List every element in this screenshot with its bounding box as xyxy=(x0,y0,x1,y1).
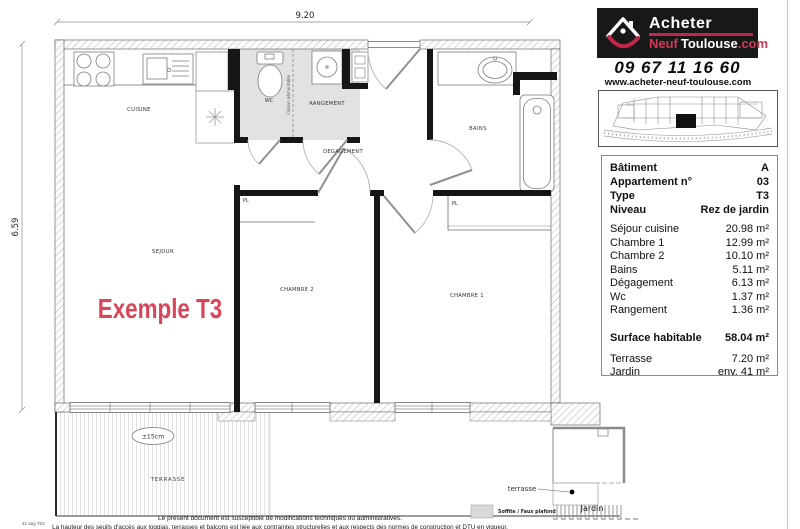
room-label-chambre1: CHAMBRE 1 xyxy=(450,293,484,299)
area-row-sejour-cuisine: Séjour cuisine20.98 m² xyxy=(610,223,769,237)
area-row-chambre1: Chambre 112.99 m² xyxy=(610,237,769,251)
room-label-rangement: RANGEMENT xyxy=(309,101,345,107)
svg-text:±15cm: ±15cm xyxy=(142,434,165,441)
disclaimer-line2: La hauteur des seuils d'accès aux loggia… xyxy=(30,524,530,529)
logo-line2: NeufToulouse.com xyxy=(649,37,755,51)
area-row-surface-habitable: Surface habitable58.04 m² xyxy=(610,331,769,345)
dimension-width-label: 9.20 xyxy=(296,11,315,21)
info-panel: BâtimentA Appartement n°03 TypeT3 Niveau… xyxy=(601,155,778,376)
bay-window-sejour xyxy=(70,403,230,413)
threshold-note: ±15cm xyxy=(132,428,174,445)
area-row-terrasse: Terrasse7.20 m² xyxy=(610,353,769,367)
room-label-sejour: SEJOUR xyxy=(152,249,174,255)
area-row-bains: Bains5.11 m² xyxy=(610,264,769,278)
inset-jardin-label: Jardin xyxy=(580,504,604,513)
logo-com: .com xyxy=(738,36,768,51)
site-plan-thumbnail xyxy=(598,90,778,147)
plan-title: Exemple T3 xyxy=(98,294,222,325)
room-label-bains: BAINS xyxy=(469,126,487,132)
terrace-label: TERRASSE xyxy=(150,477,186,483)
kitchen-fixtures xyxy=(74,52,235,143)
info-row-appartement: Appartement n°03 xyxy=(610,175,769,189)
area-row-jardin: Jardinenv. 41 m² xyxy=(610,366,769,380)
area-row-chambre2: Chambre 210.10 m² xyxy=(610,250,769,264)
page-edge-divider xyxy=(787,0,788,529)
disclaimer-line1: Le présent document est susceptible de m… xyxy=(80,515,480,522)
closet-label-1: PL xyxy=(243,198,249,204)
dimension-height-label: 6.59 xyxy=(11,218,21,237)
info-row-niveau: NiveauRez de jardin xyxy=(610,203,769,217)
closet-label-2: PL xyxy=(452,201,458,207)
highlighted-unit xyxy=(676,114,696,128)
logo-neuf: Neuf xyxy=(649,36,678,51)
window-chambre1 xyxy=(395,403,470,413)
room-label-wc: WC xyxy=(265,98,274,104)
logo-toulouse: Toulouse xyxy=(681,36,738,51)
laundry-fixtures xyxy=(312,51,368,84)
room-label-cuisine: CUISINE xyxy=(127,107,151,113)
area-row-rangement: Rangement1.36 m² xyxy=(610,304,769,318)
inset-terrasse-box xyxy=(553,483,598,505)
area-row-degagement: Dégagement6.13 m² xyxy=(610,277,769,291)
window-chambre2 xyxy=(255,403,330,413)
terrace-area xyxy=(56,412,620,516)
phone-number: 09 67 11 16 60 xyxy=(597,58,758,78)
room-label-degagement: DEGAGEMENT xyxy=(323,149,363,155)
legend-label: Soffite / Faux plafond xyxy=(498,509,556,515)
floor-plan-page: 9.20 6.59 ±15cm CUISINE WC RANGEMENT DEG… xyxy=(0,0,800,529)
website-url: www.acheter-neuf-toulouse.com xyxy=(592,77,764,88)
logo-acheter: Acheter xyxy=(649,15,755,32)
logo-house-icon xyxy=(601,11,645,55)
inset-terrasse-label: terrasse xyxy=(508,485,537,493)
windows xyxy=(70,403,470,413)
room-label-chambre2: CHAMBRE 2 xyxy=(280,287,314,293)
info-row-type: TypeT3 xyxy=(610,189,769,203)
location-inset: terrasse Jardin xyxy=(508,428,640,519)
wc-fixtures xyxy=(257,52,283,97)
info-row-batiment: BâtimentA xyxy=(610,161,769,175)
cloison-label: Cloison démontable xyxy=(286,75,291,115)
area-row-wc: Wc1.37 m² xyxy=(610,291,769,305)
agency-logo: Acheter NeufToulouse.com xyxy=(597,8,758,58)
floor-plan: 9.20 6.59 ±15cm CUISINE WC RANGEMENT DEG… xyxy=(0,0,650,529)
